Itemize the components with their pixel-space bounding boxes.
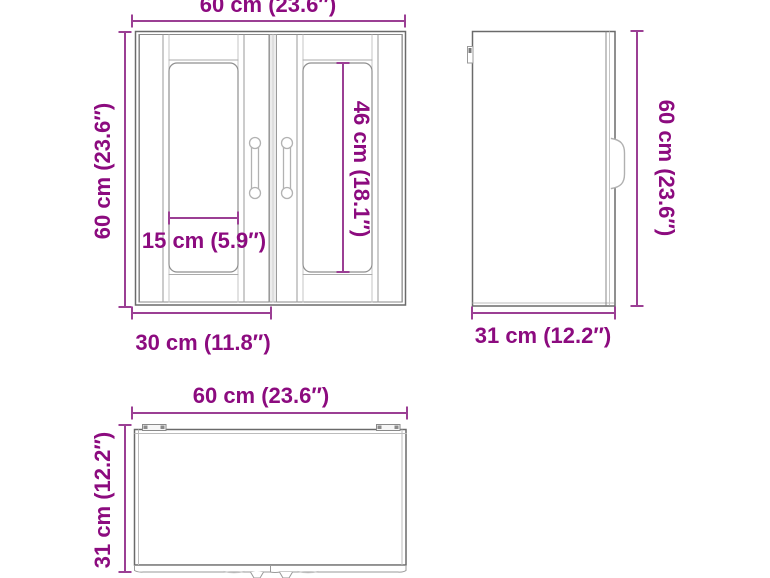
top-door-front-strip (135, 566, 407, 573)
front-left-door-handle (250, 138, 261, 199)
front-right-door-handle (282, 138, 293, 199)
side-body-outline (473, 32, 616, 307)
top-depth-dimension-line (119, 425, 132, 572)
top-depth-label: 31 cm (12.2″) (92, 432, 114, 569)
front-height-label: 60 cm (23.6″) (92, 103, 114, 240)
glass-width-label: 15 cm (5.9″) (142, 230, 266, 252)
front-left-door (140, 35, 270, 303)
side-depth-dimension-line (472, 307, 615, 320)
top-left-hinge-plate (143, 425, 167, 431)
front-center-gap (270, 35, 277, 303)
front-width-label: 60 cm (23.6″) (200, 0, 337, 16)
side-handle-profile (612, 139, 625, 189)
diagram-canvas: 60 cm (23.6″) 60 cm (23.6″) 15 cm (5.9″)… (0, 0, 770, 578)
door-width-label: 30 cm (11.8″) (135, 332, 270, 354)
side-view-drawing (468, 32, 625, 307)
top-right-handle-tab (280, 572, 293, 578)
top-right-hinge-plate (377, 425, 401, 431)
top-body-outline (135, 430, 407, 566)
glass-height-label: 46 cm (18.1″) (350, 101, 372, 238)
top-width-label: 60 cm (23.6″) (193, 385, 330, 407)
cabinet-line-art (0, 0, 770, 578)
side-depth-label: 31 cm (12.2″) (475, 325, 612, 347)
front-right-door (273, 35, 403, 303)
top-width-dimension-line (132, 407, 407, 420)
front-height-dimension-line (119, 32, 132, 307)
top-left-handle-tab (251, 572, 264, 578)
side-wall-bracket (468, 47, 474, 64)
door-width-dimension-line (132, 307, 271, 320)
side-height-dimension-line (631, 31, 644, 306)
top-view-drawing (135, 425, 407, 578)
side-height-label: 60 cm (23.6″) (655, 100, 677, 237)
